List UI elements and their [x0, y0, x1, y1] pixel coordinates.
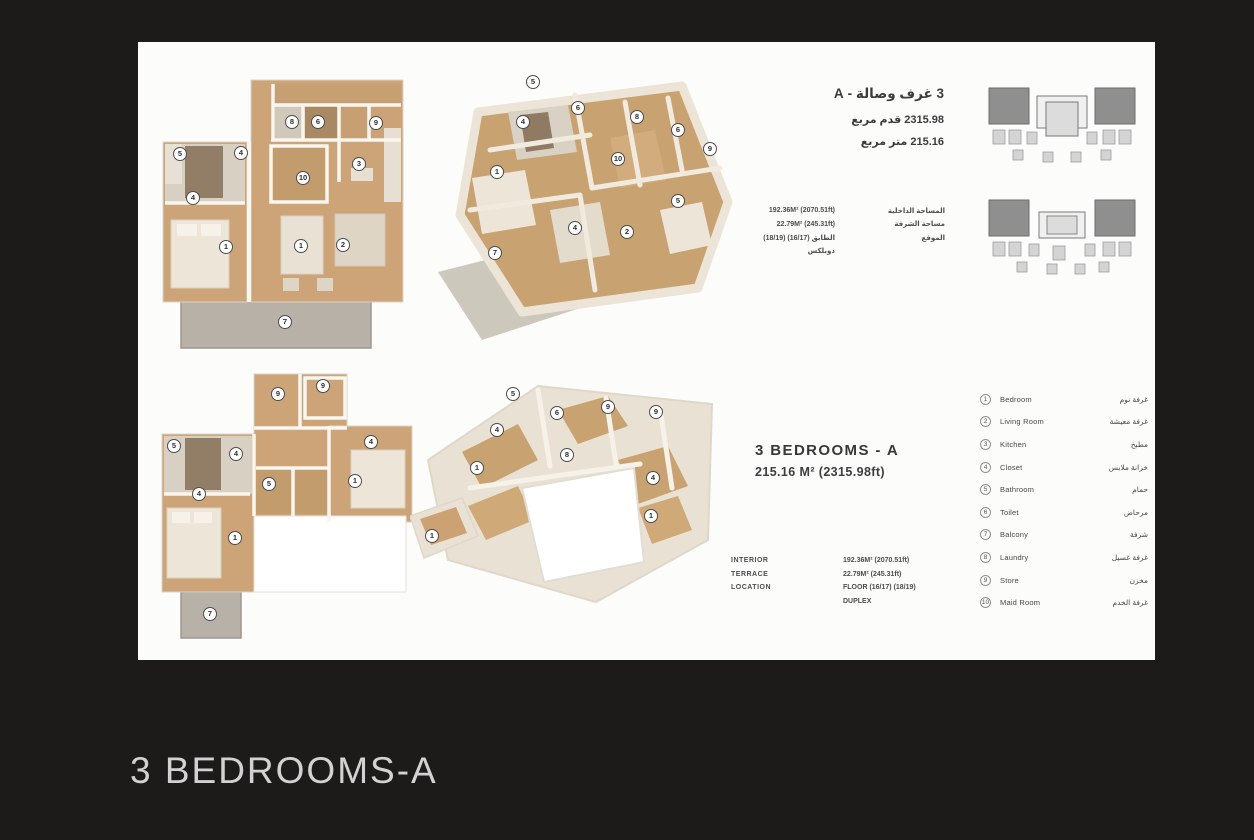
room-number-marker: 1	[644, 509, 658, 523]
info-block-arabic: 192.36M² (2070.51ft)المساحة الداخلية22.7…	[743, 204, 945, 258]
legend-number: 7	[980, 529, 991, 540]
room-number-marker: 3	[352, 157, 366, 171]
floor-plan-2d-upper-graphic	[155, 70, 445, 350]
legend-label-en: Toilet	[1000, 508, 1019, 517]
legend-label-ar: غرفة نوم	[1120, 395, 1148, 404]
legend-number: 2	[980, 416, 991, 427]
legend-label-ar: مطبخ	[1131, 440, 1148, 449]
legend-label-ar: خزانة ملابس	[1109, 463, 1148, 472]
legend-number: 6	[980, 507, 991, 518]
legend-label-en: Kitchen	[1000, 440, 1026, 449]
key-plan-diagrams	[983, 76, 1143, 300]
info-label: LOCATION	[731, 584, 789, 591]
legend-label-en: Balcony	[1000, 530, 1028, 539]
legend-number: 5	[980, 484, 991, 495]
room-number-marker: 4	[516, 115, 530, 129]
info-row: 192.36M² (2070.51ft)المساحة الداخلية	[743, 204, 945, 218]
room-number-marker: 2	[336, 238, 350, 252]
floor-plan-3d-lower: 5469918411	[410, 368, 725, 628]
room-number-marker: 4	[234, 146, 248, 160]
legend-number: 4	[980, 462, 991, 473]
room-number-marker: 6	[571, 101, 585, 115]
info-row: الطابق (16/17) (18/19)الموقع	[743, 231, 945, 245]
room-number-marker: 9	[703, 142, 717, 156]
room-number-marker: 10	[296, 171, 310, 185]
room-number-marker: 1	[425, 529, 439, 543]
info-label-ar: الموقع	[843, 234, 945, 242]
legend-item: 9Storeمخزن	[980, 569, 1148, 592]
room-number-marker: 4	[186, 191, 200, 205]
info-row: LOCATIONFLOOR (16/17) (18/19)	[731, 581, 963, 595]
room-number-marker: 1	[470, 461, 484, 475]
legend-item: 6Toiletمرحاض	[980, 501, 1148, 524]
room-number-marker: 1	[228, 531, 242, 545]
info-row: DUPLEX	[731, 595, 963, 609]
room-number-marker: 9	[369, 116, 383, 130]
room-number-marker: 4	[229, 447, 243, 461]
info-row: 22.79M² (245.31ft)مساحة الشرفة	[743, 218, 945, 232]
room-number-marker: 8	[560, 448, 574, 462]
room-number-marker: 1	[294, 239, 308, 253]
room-number-marker: 2	[620, 225, 634, 239]
legend-number: 10	[980, 597, 991, 608]
info-value: 22.79M² (245.31ft)	[743, 221, 835, 228]
room-number-marker: 1	[348, 474, 362, 488]
info-row: INTERIOR192.36M² (2070.51ft)	[731, 554, 963, 568]
arabic-title-block: 3 غرف وصالة - A 2315.98 قدم مربع 215.16 …	[746, 86, 944, 148]
room-number-marker: 4	[568, 221, 582, 235]
room-number-marker: 9	[601, 400, 615, 414]
room-number-marker: 6	[550, 406, 564, 420]
legend-label-en: Bathroom	[1000, 485, 1034, 494]
room-number-marker: 5	[671, 194, 685, 208]
legend-number: 3	[980, 439, 991, 450]
floor-plan-3d-lower-graphic	[410, 368, 725, 628]
legend-number: 9	[980, 575, 991, 586]
floor-plan-3d-upper: 5468691015427	[430, 60, 745, 360]
room-number-marker: 5	[173, 147, 187, 161]
room-number-marker: 7	[203, 607, 217, 621]
unit-name: 3 BEDROOMS - A	[755, 442, 985, 459]
floor-plan-3d-upper-graphic	[430, 60, 745, 360]
legend-item: 7Balconyشرفة	[980, 524, 1148, 547]
legend-item: 10Maid Roomغرفة الخدم	[980, 591, 1148, 614]
legend-label-ar: مرحاض	[1124, 508, 1148, 517]
key-plan-lower-icon	[983, 188, 1141, 288]
legend-label-en: Bedroom	[1000, 395, 1032, 404]
room-number-marker: 7	[278, 315, 292, 329]
unit-title-block: 3 BEDROOMS - A 215.16 M² (2315.98ft)	[755, 442, 985, 479]
room-number-marker: 4	[646, 471, 660, 485]
info-value: FLOOR (16/17) (18/19)	[843, 584, 916, 591]
room-number-marker: 1	[490, 165, 504, 179]
room-number-marker: 4	[490, 423, 504, 437]
arabic-title-line3: 215.16 متر مربع	[746, 135, 944, 148]
unit-area: 215.16 M² (2315.98ft)	[755, 465, 985, 479]
room-number-marker: 7	[488, 246, 502, 260]
room-number-marker: 8	[630, 110, 644, 124]
room-number-marker: 6	[671, 123, 685, 137]
room-number-marker: 9	[271, 387, 285, 401]
room-number-marker: 9	[649, 405, 663, 419]
room-number-marker: 5	[526, 75, 540, 89]
legend-item: 8Laundryغرفة غسيل	[980, 546, 1148, 569]
room-number-marker: 5	[167, 439, 181, 453]
floor-plan-2d-lower: 9954415417	[155, 370, 425, 640]
legend-label-en: Store	[1000, 576, 1019, 585]
arabic-title-line2: 2315.98 قدم مربع	[746, 113, 944, 126]
legend-item: 2Living Roomغرفة معيشة	[980, 411, 1148, 434]
room-number-marker: 4	[192, 487, 206, 501]
info-label: INTERIOR	[731, 557, 789, 564]
legend-list: 1Bedroomغرفة نوم2Living Roomغرفة معيشة3K…	[980, 388, 1148, 614]
info-value: DUPLEX	[843, 598, 871, 605]
floor-plan-2d-upper: 5486910341127	[155, 70, 445, 350]
arabic-title-line1: 3 غرف وصالة - A	[746, 86, 944, 102]
legend-number: 8	[980, 552, 991, 563]
key-plan-upper-icon	[983, 76, 1141, 176]
legend-label-en: Closet	[1000, 463, 1022, 472]
room-number-marker: 6	[311, 115, 325, 129]
legend-item: 4Closetخزانة ملابس	[980, 456, 1148, 479]
room-number-marker: 5	[262, 477, 276, 491]
legend-label-en: Maid Room	[1000, 598, 1040, 607]
legend-label-ar: حمام	[1132, 485, 1148, 494]
info-row: دوبلكس	[743, 245, 945, 259]
legend-label-en: Living Room	[1000, 417, 1044, 426]
legend-label-ar: شرفة	[1130, 530, 1148, 539]
info-value: 22.79M² (245.31ft)	[843, 571, 901, 578]
legend-item: 1Bedroomغرفة نوم	[980, 388, 1148, 411]
info-value: الطابق (16/17) (18/19)	[743, 234, 835, 242]
info-value: 192.36M² (2070.51ft)	[743, 207, 835, 214]
legend-item: 5Bathroomحمام	[980, 478, 1148, 501]
info-label-ar: مساحة الشرفة	[843, 220, 945, 228]
room-number-marker: 8	[285, 115, 299, 129]
info-value: 192.36M² (2070.51ft)	[843, 557, 909, 564]
info-label: TERRACE	[731, 571, 789, 578]
info-block-english: INTERIOR192.36M² (2070.51ft)TERRACE22.79…	[731, 554, 963, 608]
info-label-ar: المساحة الداخلية	[843, 207, 945, 215]
page-title: 3 BEDROOMS-A	[130, 750, 438, 792]
room-number-marker: 5	[506, 387, 520, 401]
legend-number: 1	[980, 394, 991, 405]
legend-label-en: Laundry	[1000, 553, 1029, 562]
info-row: TERRACE22.79M² (245.31ft)	[731, 568, 963, 582]
room-number-marker: 10	[611, 152, 625, 166]
info-value: دوبلكس	[743, 247, 835, 255]
legend-item: 3Kitchenمطبخ	[980, 433, 1148, 456]
room-number-marker: 4	[364, 435, 378, 449]
floor-plan-2d-lower-graphic	[155, 370, 425, 640]
room-number-marker: 9	[316, 379, 330, 393]
room-number-marker: 1	[219, 240, 233, 254]
legend-label-ar: مخزن	[1129, 576, 1148, 585]
legend-label-ar: غرفة غسيل	[1112, 553, 1148, 562]
legend-label-ar: غرفة الخدم	[1112, 598, 1148, 607]
brochure-panel: 5486910341127 5468691015427	[138, 42, 1155, 660]
legend-label-ar: غرفة معيشة	[1110, 417, 1148, 426]
